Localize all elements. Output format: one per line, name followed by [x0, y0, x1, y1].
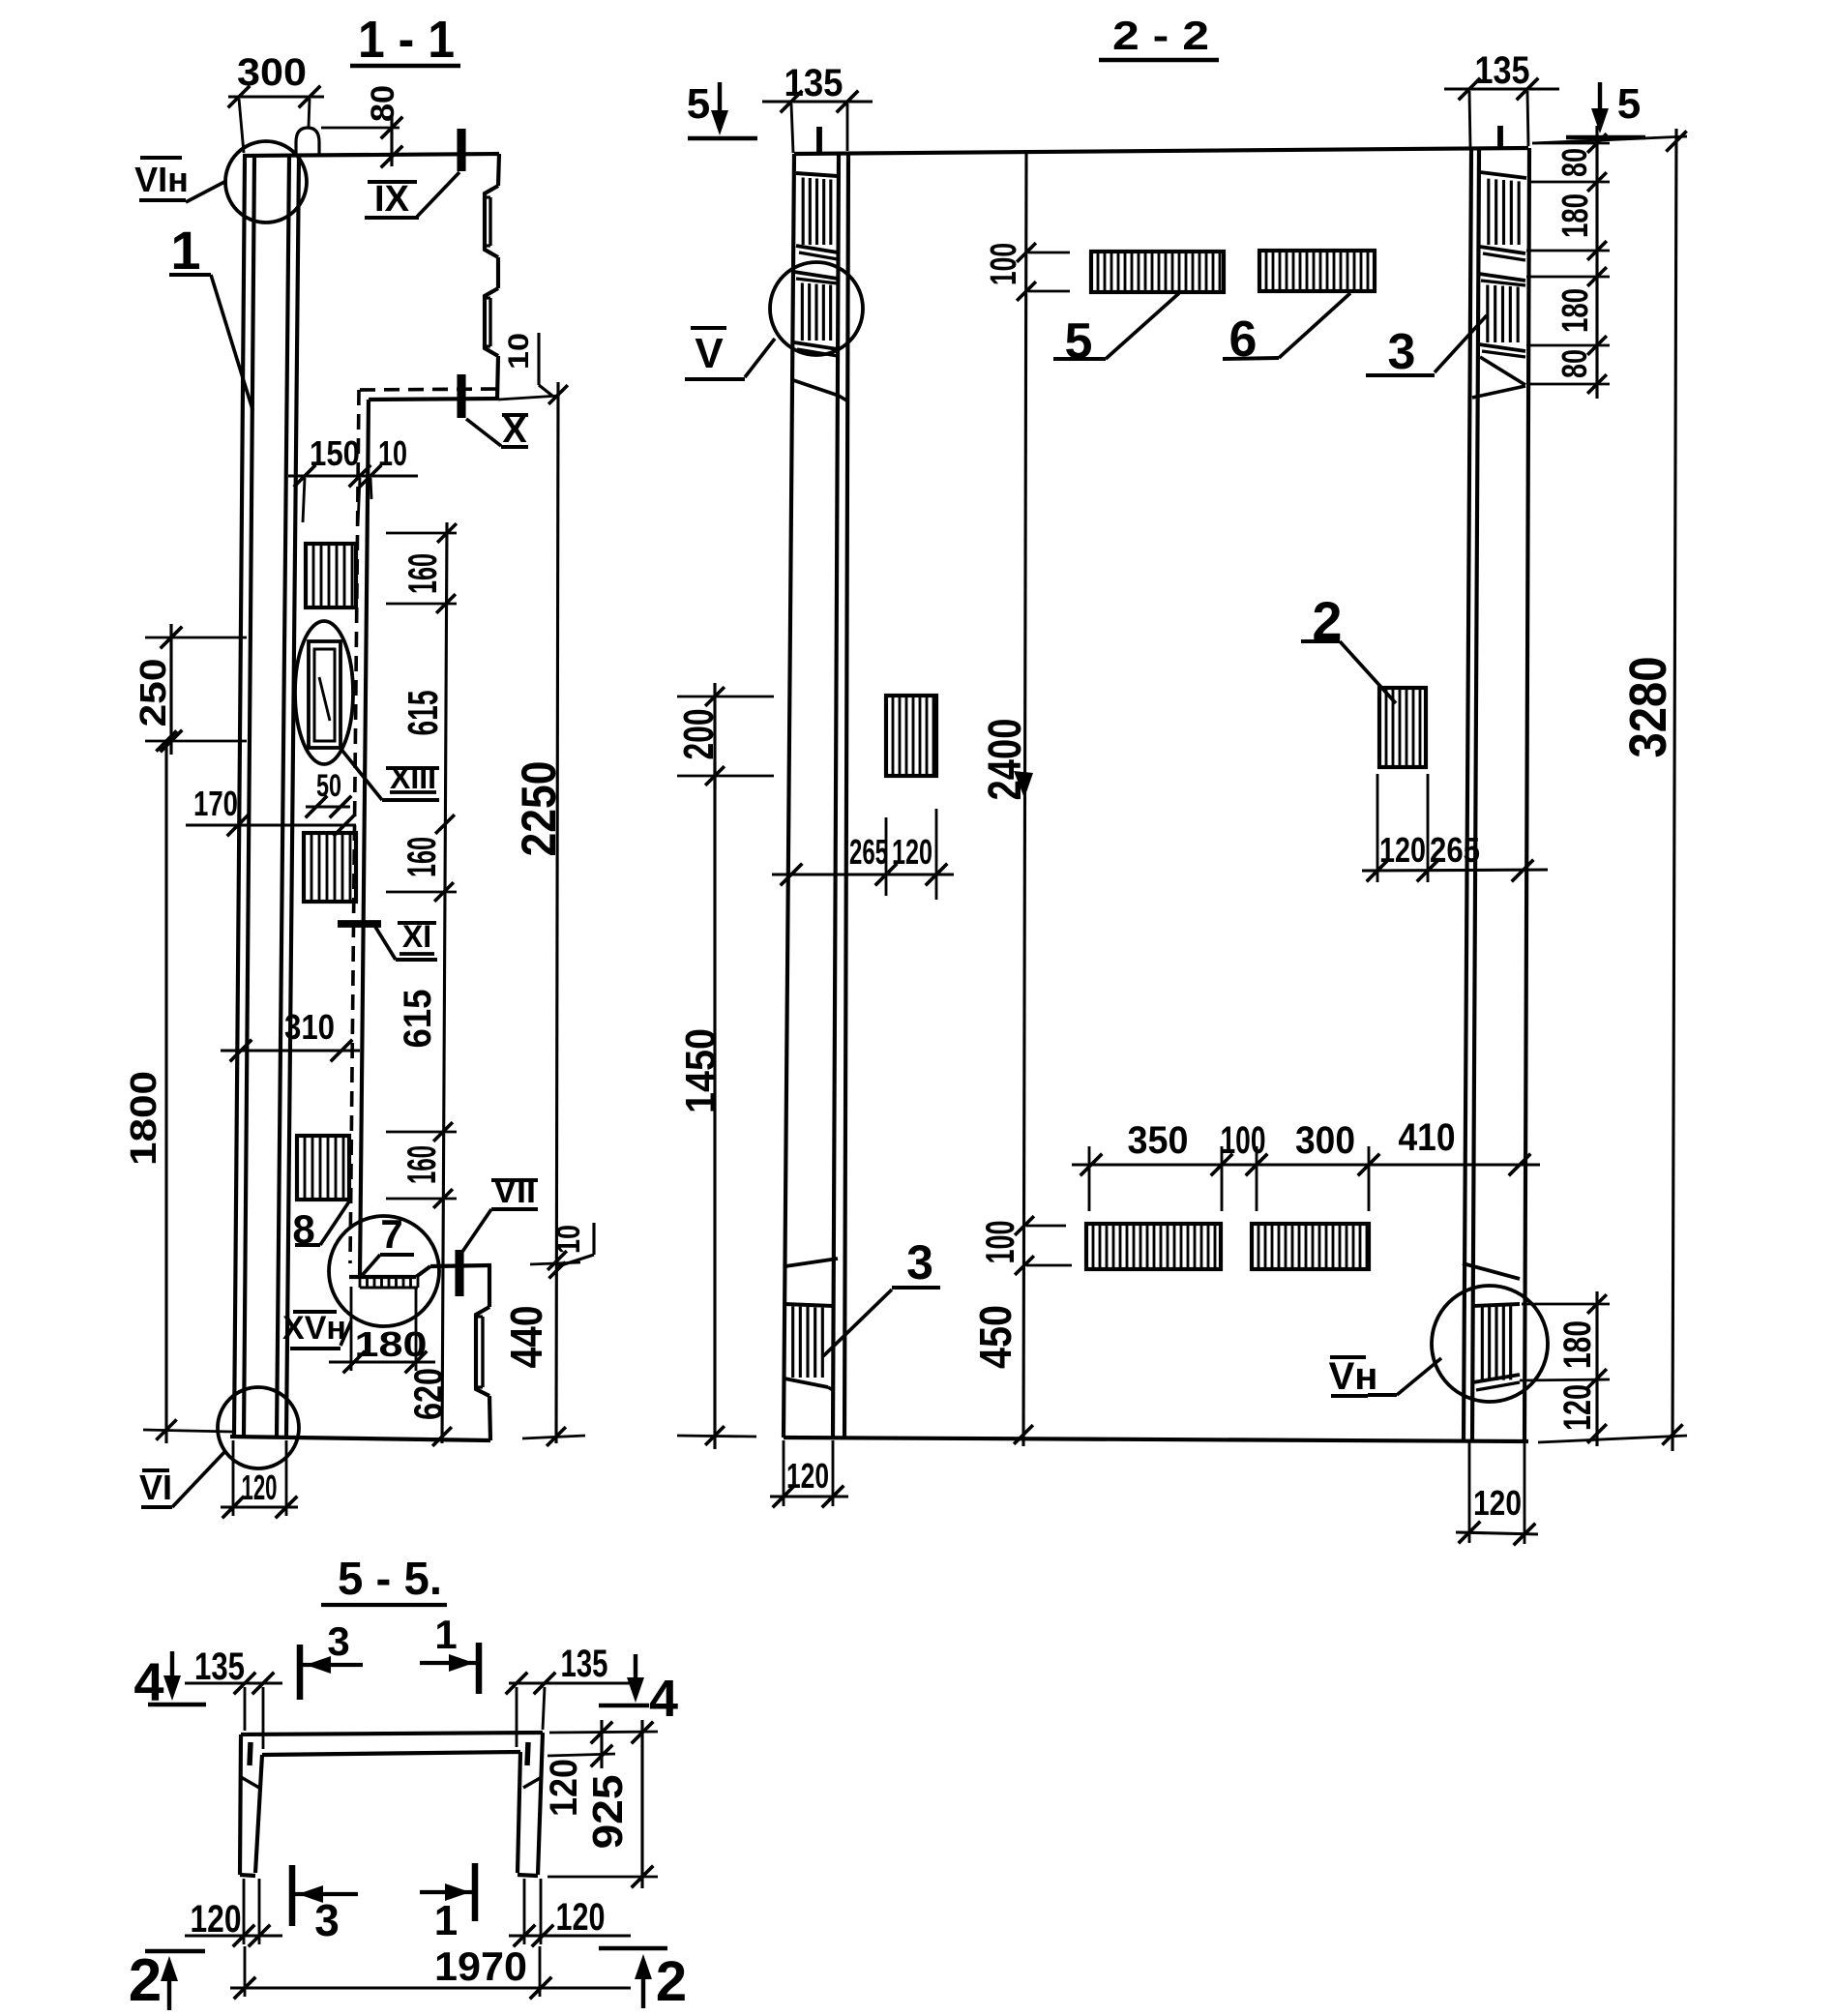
svg-text:1450: 1450 — [677, 1028, 725, 1113]
svg-text:620: 620 — [405, 1368, 451, 1420]
svg-text:XI: XI — [402, 919, 431, 954]
svg-text:1800: 1800 — [124, 1071, 164, 1166]
svg-text:Vн: Vн — [1329, 1355, 1378, 1398]
svg-text:80: 80 — [365, 85, 401, 122]
svg-text:1: 1 — [434, 1897, 458, 1944]
svg-text:120: 120 — [242, 1468, 278, 1507]
svg-text:3: 3 — [906, 1235, 933, 1290]
svg-text:100: 100 — [977, 1221, 1022, 1264]
svg-text:4: 4 — [649, 1670, 678, 1728]
svg-text:410: 410 — [1399, 1116, 1456, 1159]
svg-text:VI: VI — [139, 1468, 172, 1507]
svg-text:120: 120 — [556, 1896, 606, 1939]
svg-text:150: 150 — [310, 433, 360, 473]
svg-text:80: 80 — [1554, 148, 1594, 177]
svg-text:160: 160 — [399, 1145, 444, 1184]
svg-text:2250: 2250 — [512, 761, 566, 857]
svg-text:310: 310 — [284, 1007, 335, 1047]
svg-text:2: 2 — [656, 1950, 687, 2013]
svg-text:1970: 1970 — [434, 1943, 527, 1989]
svg-text:3: 3 — [314, 1895, 340, 1945]
svg-text:180: 180 — [1556, 1320, 1599, 1369]
svg-text:265: 265 — [1430, 830, 1480, 870]
svg-text:IX: IX — [374, 179, 410, 220]
svg-text:100: 100 — [984, 243, 1024, 285]
svg-text:X: X — [502, 410, 527, 451]
svg-text:170: 170 — [193, 784, 238, 823]
svg-text:XIII: XIII — [390, 760, 436, 795]
svg-text:2 - 2: 2 - 2 — [1112, 13, 1209, 58]
svg-text:120: 120 — [1473, 1483, 1522, 1523]
svg-text:120: 120 — [1556, 1384, 1599, 1431]
svg-text:350: 350 — [1128, 1119, 1189, 1162]
svg-text:VII: VII — [493, 1171, 536, 1210]
svg-text:160: 160 — [400, 553, 445, 594]
svg-text:300: 300 — [1295, 1119, 1355, 1162]
svg-text:5: 5 — [687, 80, 710, 128]
svg-text:135: 135 — [194, 1645, 245, 1688]
svg-text:50: 50 — [316, 768, 341, 803]
svg-text:5: 5 — [1065, 313, 1093, 370]
svg-text:1: 1 — [170, 220, 200, 281]
svg-text:10: 10 — [550, 1225, 587, 1254]
svg-text:615: 615 — [397, 990, 439, 1049]
svg-text:120: 120 — [543, 1759, 585, 1817]
svg-text:120: 120 — [191, 1898, 242, 1941]
svg-text:5 - 5.: 5 - 5. — [338, 1554, 442, 1605]
svg-text:250: 250 — [133, 659, 174, 727]
svg-text:1: 1 — [434, 1612, 457, 1657]
svg-text:VIн: VIн — [134, 160, 189, 199]
svg-text:3: 3 — [1388, 324, 1416, 380]
svg-text:135: 135 — [561, 1643, 608, 1685]
svg-text:120: 120 — [892, 832, 932, 872]
svg-text:80: 80 — [1554, 349, 1594, 378]
svg-text:3280: 3280 — [1619, 657, 1677, 758]
svg-text:440: 440 — [501, 1306, 551, 1369]
svg-text:265: 265 — [849, 832, 888, 872]
svg-text:100: 100 — [1221, 1119, 1266, 1162]
svg-text:925: 925 — [584, 1775, 632, 1850]
svg-text:XVн: XVн — [282, 1310, 346, 1347]
svg-text:450: 450 — [970, 1305, 1021, 1369]
svg-text:5: 5 — [1617, 80, 1641, 128]
svg-text:10: 10 — [503, 333, 535, 370]
svg-text:1 - 1: 1 - 1 — [358, 11, 455, 69]
svg-text:180: 180 — [1555, 288, 1596, 333]
svg-text:615: 615 — [400, 691, 447, 736]
svg-text:180: 180 — [1555, 193, 1596, 238]
svg-text:10: 10 — [378, 433, 407, 473]
svg-text:135: 135 — [1475, 49, 1530, 92]
svg-text:160: 160 — [399, 837, 444, 877]
svg-text:V: V — [695, 330, 724, 377]
svg-text:2: 2 — [129, 1947, 162, 2014]
